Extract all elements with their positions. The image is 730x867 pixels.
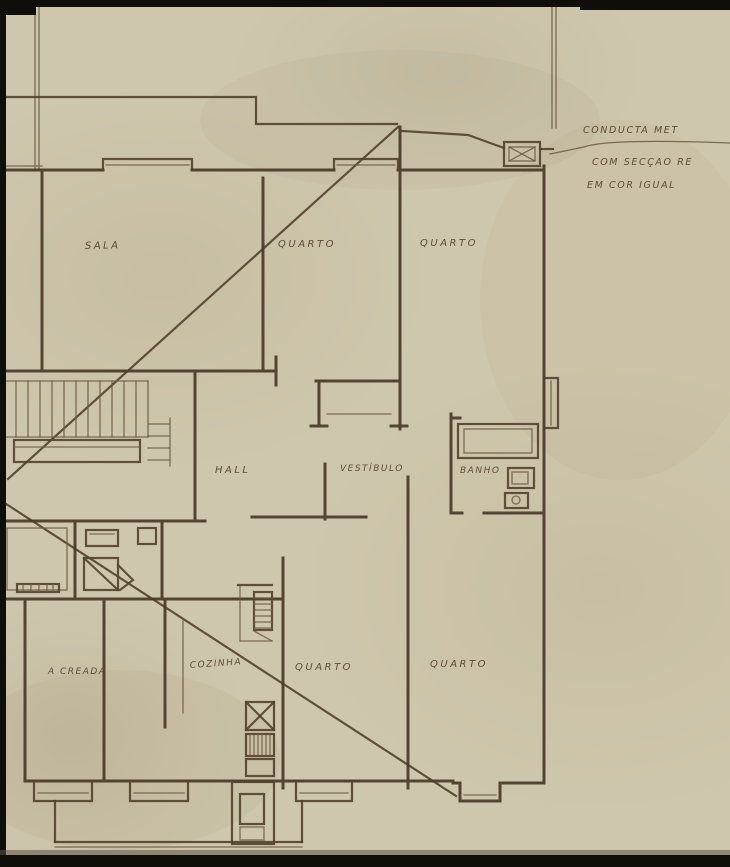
annotation-line-2: COM SECÇÃO RE (592, 157, 693, 168)
room-label-vestibulo: VESTÍBULO (340, 462, 404, 474)
staircase (0, 381, 170, 466)
toilet (505, 493, 528, 508)
stair-treads (4, 381, 148, 437)
room-label-banho: BANHO (460, 466, 500, 476)
room-label-quarto-top-right: QUARTO (420, 238, 478, 249)
laundry-tub (86, 530, 118, 546)
room-label-cozinha: COZINHA (190, 657, 243, 671)
diagonal-line-upper (8, 127, 398, 479)
small-fixture (138, 528, 156, 544)
paper-stains (0, 50, 730, 850)
annotation-line-1: CONDUCTA MET (583, 125, 679, 136)
service-fixtures (7, 528, 156, 592)
room-label-quarto-top-left: QUARTO (278, 239, 336, 250)
annotation-line-3: EM COR IGUAL (587, 180, 676, 191)
room-label-quarto-bottom-left: QUARTO (295, 662, 353, 673)
room-label-sala: SALA (85, 240, 121, 252)
room-label-creada: A CREADA (47, 667, 107, 677)
room-labels: SALA QUARTO QUARTO HALL VESTÍBULO BANHO … (0, 238, 500, 677)
room-label-hall: HALL (215, 465, 251, 476)
stair-winders (148, 418, 170, 466)
floor-plan-sheet: SALA QUARTO QUARTO HALL VESTÍBULO BANHO … (0, 0, 730, 867)
room-label-quarto-bottom-right: QUARTO (430, 659, 488, 670)
stair-landing (14, 440, 140, 462)
floor-plan-drawing: SALA QUARTO QUARTO HALL VESTÍBULO BANHO … (0, 0, 730, 867)
